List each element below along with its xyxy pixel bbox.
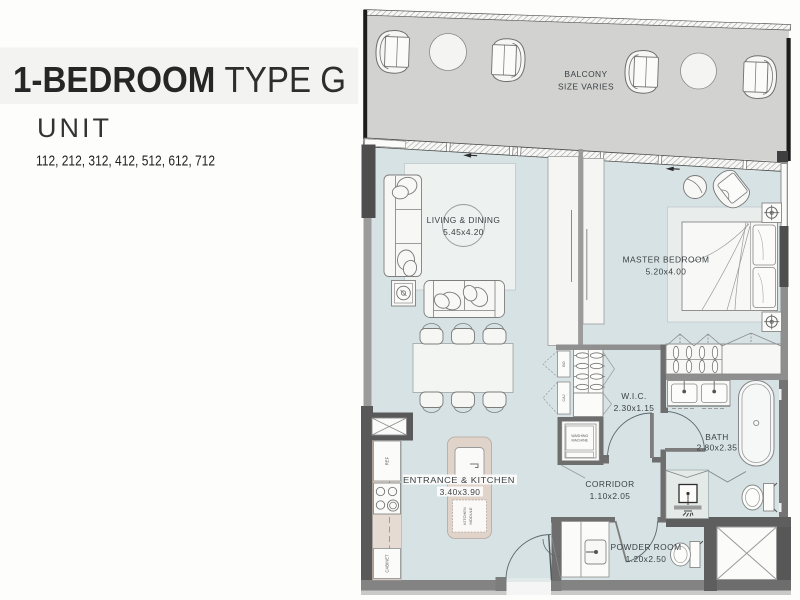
svg-text:MODULE: MODULE [468, 507, 473, 524]
svg-text:POWDER ROOM: POWDER ROOM [610, 542, 681, 552]
svg-text:3.40x3.90: 3.40x3.90 [440, 487, 481, 497]
svg-text:1.20x2.50: 1.20x2.50 [626, 554, 667, 564]
svg-text:W.I.C.: W.I.C. [621, 391, 647, 401]
svg-text:CORRIDOR: CORRIDOR [585, 479, 634, 489]
svg-text:2.80x2.35: 2.80x2.35 [697, 443, 738, 453]
svg-text:CABINET: CABINET [385, 554, 390, 573]
svg-text:ENTRANCE & KITCHEN: ENTRANCE & KITCHEN [403, 475, 515, 485]
svg-text:REF: REF [385, 456, 390, 465]
svg-text:SIZE VARIES: SIZE VARIES [558, 82, 614, 92]
svg-text:5.45x4.20: 5.45x4.20 [443, 227, 484, 237]
svg-text:MASTER BEDROOM: MASTER BEDROOM [623, 255, 710, 265]
svg-text:WASHING: WASHING [571, 434, 588, 438]
svg-text:BATH: BATH [705, 432, 729, 442]
svg-text:2.30x1.15: 2.30x1.15 [614, 403, 655, 413]
svg-text:1.10x2.05: 1.10x2.05 [590, 491, 631, 501]
svg-text:LIVING & DINING: LIVING & DINING [427, 215, 501, 225]
svg-text:1-BEDROOM TYPE G: 1-BEDROOM TYPE G [13, 59, 346, 100]
svg-text:BO: BO [562, 361, 566, 367]
svg-text:KITCHEN: KITCHEN [462, 507, 467, 525]
svg-text:MACHINE: MACHINE [572, 439, 589, 443]
svg-text:5.20x4.00: 5.20x4.00 [646, 267, 687, 277]
svg-text:112, 212, 312, 412, 512, 612,: 112, 212, 312, 412, 512, 612, 712 [36, 153, 215, 170]
svg-text:CAJ: CAJ [562, 394, 566, 401]
svg-text:UNIT: UNIT [37, 113, 112, 143]
svg-text:BALCONY: BALCONY [564, 69, 607, 79]
